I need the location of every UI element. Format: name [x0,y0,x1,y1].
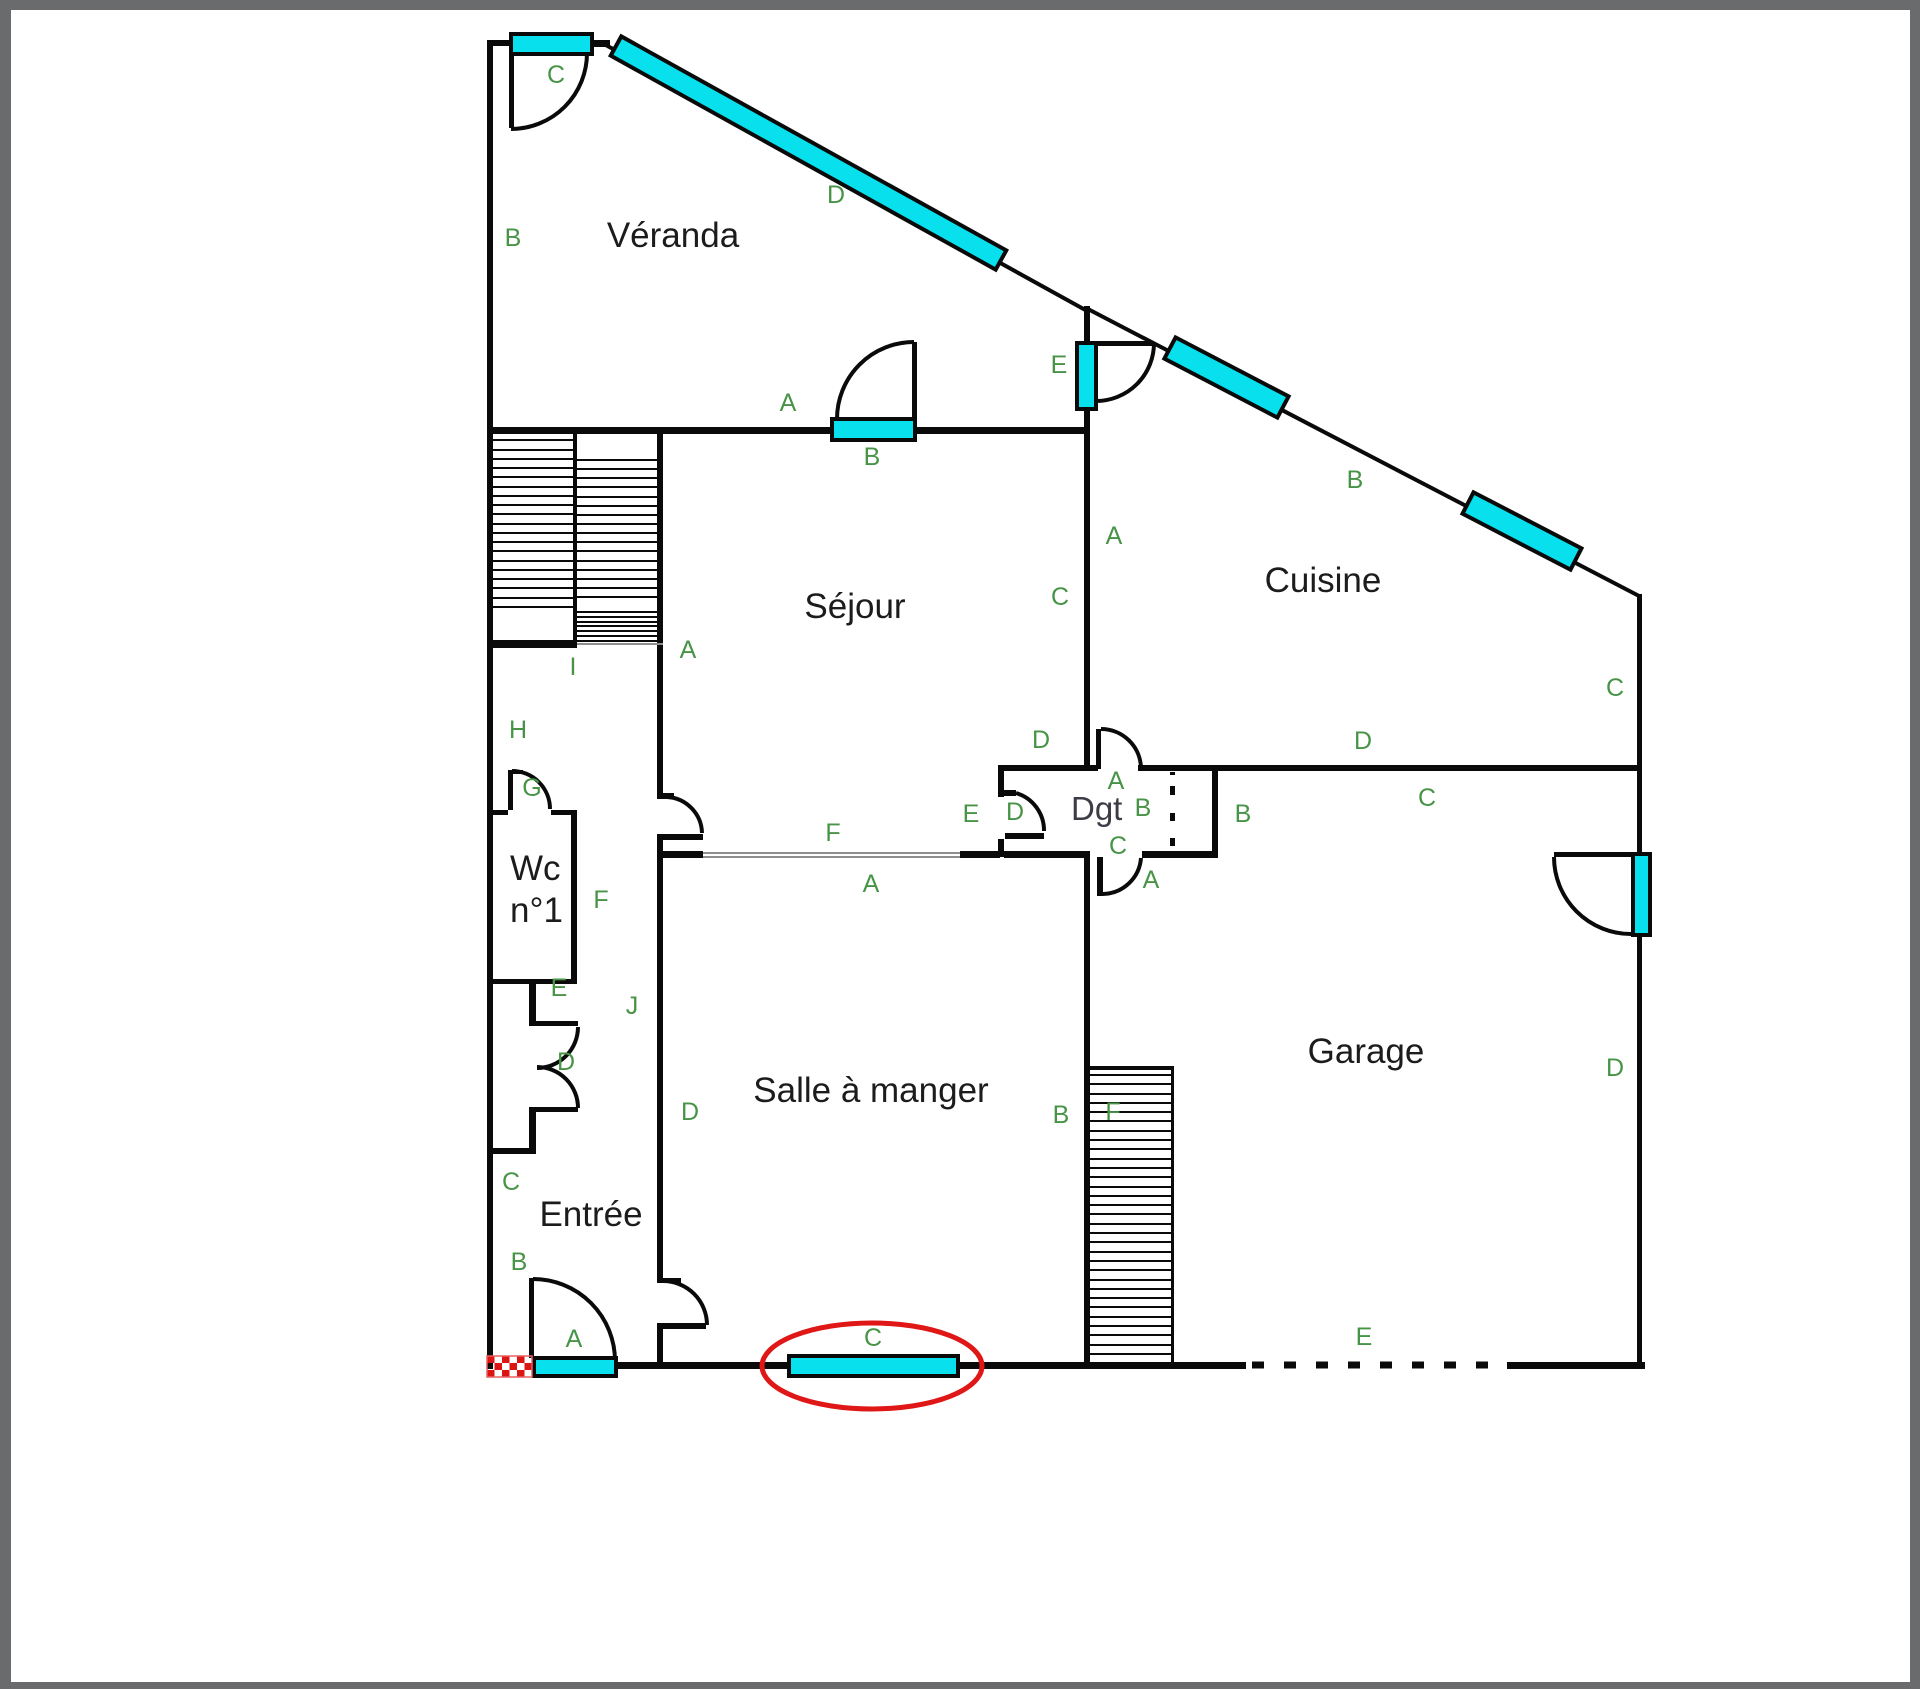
svg-text:C: C [1109,832,1127,860]
svg-text:E: E [963,800,980,828]
svg-text:B: B [1135,794,1152,822]
svg-text:A: A [780,389,797,417]
svg-text:E: E [551,974,568,1002]
svg-text:G: G [522,774,541,802]
svg-text:A: A [1108,767,1125,795]
svg-text:Cuisine: Cuisine [1265,561,1382,600]
svg-text:H: H [509,716,527,744]
svg-text:Wc: Wc [510,849,561,888]
svg-text:A: A [566,1325,583,1353]
svg-text:B: B [505,224,522,252]
svg-text:J: J [626,992,639,1020]
svg-text:B: B [1053,1101,1070,1129]
svg-text:D: D [557,1048,575,1076]
svg-text:C: C [864,1324,882,1352]
svg-text:C: C [1606,674,1624,702]
svg-text:E: E [1051,351,1068,379]
svg-text:D: D [681,1098,699,1126]
svg-text:C: C [502,1168,520,1196]
svg-text:Salle à manger: Salle à manger [753,1071,989,1110]
svg-text:D: D [1606,1054,1624,1082]
svg-text:B: B [864,443,881,471]
svg-text:F: F [1105,1098,1120,1126]
svg-text:C: C [547,61,565,89]
svg-text:A: A [1143,866,1160,894]
svg-text:C: C [1051,583,1069,611]
svg-text:Entrée: Entrée [539,1195,642,1234]
svg-text:A: A [680,636,697,664]
svg-text:C: C [1418,784,1436,812]
svg-text:Séjour: Séjour [804,587,906,626]
svg-text:Véranda: Véranda [607,216,740,255]
svg-text:n°1: n°1 [510,891,563,930]
svg-text:I: I [570,653,577,681]
svg-text:F: F [825,819,840,847]
svg-text:Dgt: Dgt [1071,790,1122,827]
svg-text:B: B [511,1248,528,1276]
svg-text:F: F [593,886,608,914]
svg-text:A: A [1106,522,1123,550]
svg-text:D: D [827,181,845,209]
svg-text:D: D [1032,726,1050,754]
svg-text:A: A [863,870,880,898]
svg-text:D: D [1006,798,1024,826]
svg-text:D: D [1354,727,1372,755]
svg-text:B: B [1235,800,1252,828]
svg-text:Garage: Garage [1308,1032,1425,1071]
svg-text:B: B [1347,466,1364,494]
svg-text:E: E [1356,1323,1373,1351]
